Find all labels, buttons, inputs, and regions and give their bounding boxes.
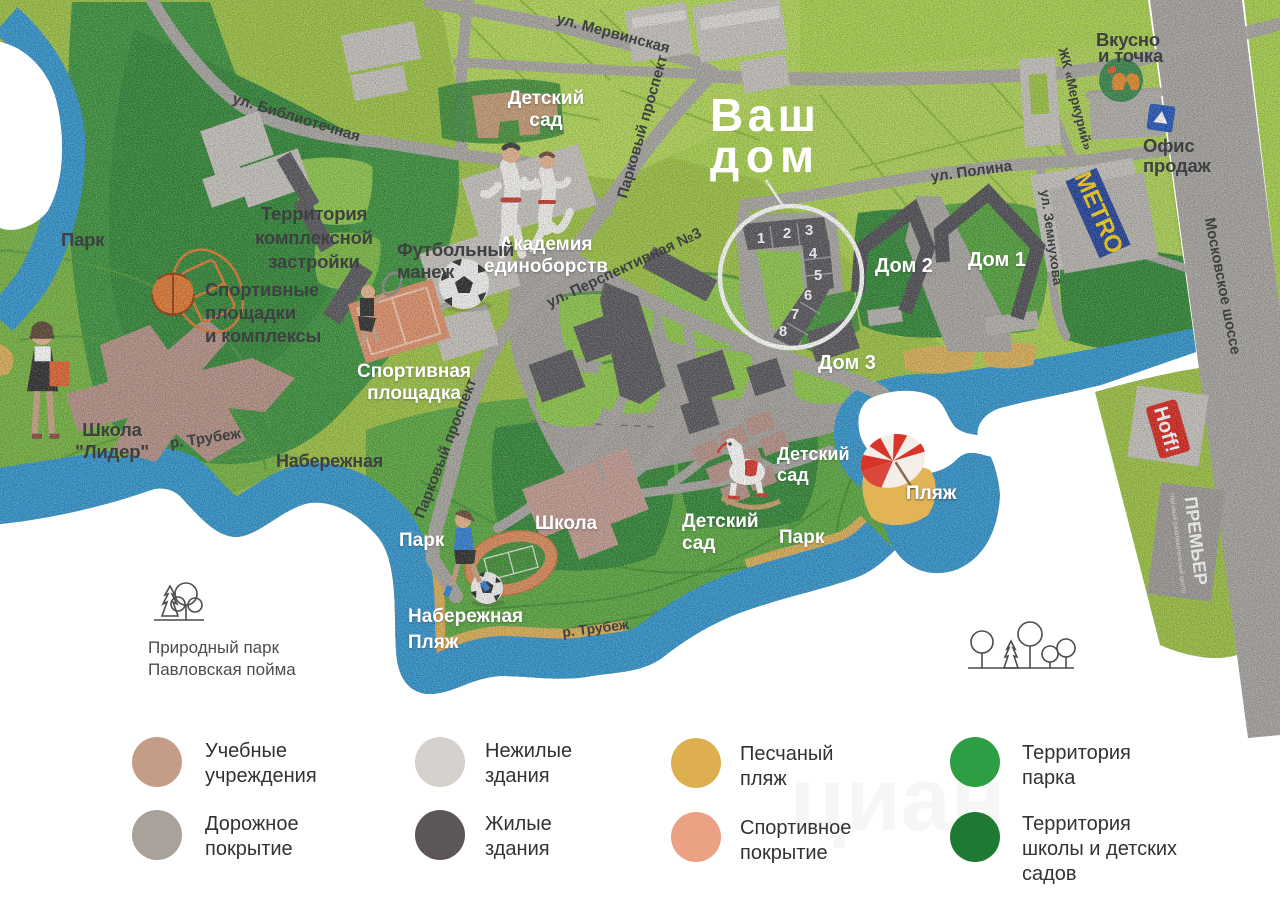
svg-text:покрытие: покрытие: [740, 842, 828, 864]
svg-text:Учебные: Учебные: [205, 740, 287, 762]
svg-text:Жилые: Жилые: [485, 813, 552, 835]
svg-text:Парк: Парк: [399, 530, 445, 551]
svg-text:сад: сад: [777, 465, 809, 485]
svg-text:парка: парка: [1022, 767, 1076, 789]
svg-text:Школа: Школа: [535, 513, 598, 534]
svg-text:и точка: и точка: [1098, 45, 1164, 66]
svg-text:Парк: Парк: [61, 229, 105, 250]
svg-text:и комплексы: и комплексы: [205, 325, 321, 346]
svg-text:пляж: пляж: [740, 768, 787, 790]
svg-text:Территория: Территория: [261, 203, 367, 224]
svg-text:дом: дом: [710, 130, 814, 182]
svg-text:Дом 2: Дом 2: [875, 255, 933, 277]
svg-text:Дом 3: Дом 3: [818, 352, 876, 374]
svg-text:Набережная: Набережная: [276, 451, 383, 471]
svg-text:застройки: застройки: [268, 251, 359, 272]
svg-text:Набережная: Набережная: [408, 606, 523, 627]
svg-text:Парк: Парк: [779, 527, 825, 548]
svg-text:Детский: Детский: [508, 88, 585, 109]
svg-text:манеж: манеж: [397, 261, 455, 282]
svg-text:Территория: Территория: [1022, 813, 1131, 835]
svg-text:покрытие: покрытие: [205, 838, 293, 860]
svg-text:здания: здания: [485, 765, 550, 787]
svg-text:Спортивное: Спортивное: [740, 817, 851, 839]
svg-text:Спортивные: Спортивные: [205, 279, 319, 300]
svg-text:Нежилые: Нежилые: [485, 740, 572, 762]
svg-text:Песчаный: Песчаный: [740, 743, 833, 765]
svg-text:комплексной: комплексной: [255, 227, 373, 248]
svg-text:Пляж: Пляж: [408, 632, 459, 653]
svg-text:Футбольный: Футбольный: [397, 239, 514, 260]
svg-text:Детский: Детский: [777, 444, 850, 464]
svg-text:Дом 1: Дом 1: [968, 249, 1026, 271]
svg-text:"Лидер": "Лидер": [75, 441, 149, 462]
svg-text:садов: садов: [1022, 863, 1077, 885]
svg-text:Павловская пойма: Павловская пойма: [148, 660, 296, 679]
svg-text:Детский: Детский: [682, 511, 759, 532]
svg-text:школы и детских: школы и детских: [1022, 838, 1177, 860]
svg-text:Природный парк: Природный парк: [148, 638, 280, 657]
svg-text:здания: здания: [485, 838, 550, 860]
svg-text:площадки: площадки: [205, 302, 296, 323]
svg-text:Спортивная: Спортивная: [357, 361, 471, 382]
svg-text:учреждения: учреждения: [205, 765, 317, 787]
svg-text:площадка: площадка: [367, 383, 461, 404]
svg-text:Офис: Офис: [1143, 135, 1194, 156]
svg-text:продаж: продаж: [1143, 155, 1212, 176]
svg-text:Дорожное: Дорожное: [205, 813, 299, 835]
svg-text:Школа: Школа: [82, 419, 142, 440]
svg-text:Пляж: Пляж: [906, 483, 957, 504]
svg-text:сад: сад: [529, 110, 562, 131]
svg-text:сад: сад: [682, 533, 715, 554]
svg-text:Территория: Территория: [1022, 742, 1131, 764]
